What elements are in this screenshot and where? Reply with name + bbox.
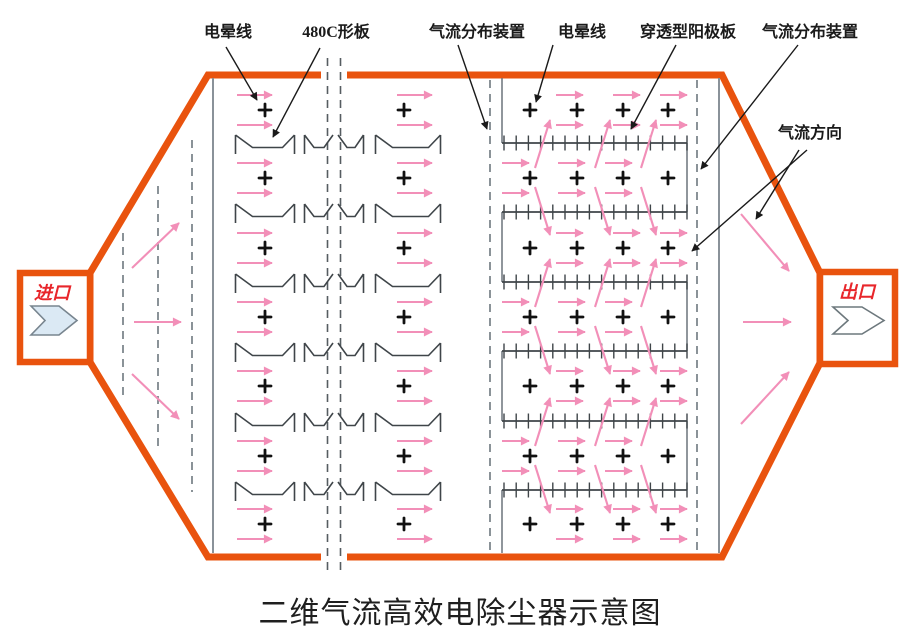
label-corona-wire-right: 电晕线 bbox=[558, 22, 606, 41]
label-flow-distributor-left: 气流分布装置 bbox=[428, 22, 525, 41]
corona-wire-plus bbox=[524, 450, 536, 462]
inlet-label: 进口 bbox=[34, 283, 72, 303]
corona-wire-plus bbox=[617, 450, 629, 462]
outlet-label: 出口 bbox=[839, 282, 877, 302]
c-plate bbox=[305, 482, 364, 501]
flow-arrow bbox=[535, 259, 550, 307]
corona-wire-plus bbox=[524, 380, 536, 392]
flow-arrow bbox=[595, 398, 610, 446]
flow-arrows bbox=[132, 95, 791, 539]
flow-arrow bbox=[132, 223, 179, 268]
leader-flow-direction-2 bbox=[692, 150, 807, 251]
corona-wire-plus bbox=[617, 242, 629, 254]
flow-arrow bbox=[595, 465, 610, 513]
flow-arrow bbox=[641, 326, 656, 374]
corona-wire-plus bbox=[259, 380, 271, 392]
precipitator-schematic-page: 电晕线 480C形板 气流分布装置 电晕线 穿透型阳极板 气流分布装置 气流方向… bbox=[0, 0, 915, 644]
flow-arrow bbox=[535, 326, 550, 374]
corona-wire-plus bbox=[662, 380, 674, 392]
c-plate bbox=[236, 274, 295, 293]
flow-arrow bbox=[641, 120, 656, 168]
corona-wire-plus bbox=[571, 172, 583, 184]
corona-wire-plus bbox=[662, 450, 674, 462]
corona-wire-plus bbox=[617, 518, 629, 530]
corona-wire-plus bbox=[617, 380, 629, 392]
corona-wire-plus bbox=[524, 518, 536, 530]
c-plate bbox=[236, 413, 295, 432]
c-plate bbox=[376, 204, 441, 223]
corona-wire-plus bbox=[259, 518, 271, 530]
c-plate bbox=[376, 343, 441, 362]
corona-wire-plus bbox=[662, 242, 674, 254]
flow-arrow bbox=[595, 259, 610, 307]
corona-wire-plus bbox=[398, 242, 410, 254]
leader-flow-distributor-left bbox=[458, 45, 487, 129]
c-plate bbox=[376, 482, 441, 501]
flow-arrow bbox=[595, 326, 610, 374]
flow-arrow bbox=[595, 187, 610, 235]
corona-wire-plus bbox=[524, 311, 536, 323]
corona-wire-plus bbox=[259, 311, 271, 323]
corona-wire-plus bbox=[571, 380, 583, 392]
border-gap-top bbox=[321, 67, 347, 83]
c-plate bbox=[236, 482, 295, 501]
flow-arrow bbox=[641, 187, 656, 235]
flow-arrow bbox=[741, 372, 789, 424]
flow-arrow bbox=[595, 120, 610, 168]
corona-wire-plus bbox=[524, 172, 536, 184]
corona-wire-plus bbox=[524, 104, 536, 116]
precipitator-diagram: 电晕线 480C形板 气流分布装置 电晕线 穿透型阳极板 气流分布装置 气流方向… bbox=[0, 0, 915, 644]
corona-wire-plus bbox=[398, 311, 410, 323]
flow-arrow bbox=[641, 259, 656, 307]
c-plate bbox=[236, 204, 295, 223]
corona-wire-plus bbox=[398, 104, 410, 116]
label-anode-plate: 穿透型阳极板 bbox=[640, 22, 737, 41]
c-plate bbox=[236, 135, 295, 154]
corona-wire-plus bbox=[398, 518, 410, 530]
corona-wire-plus bbox=[398, 450, 410, 462]
corona-wire-plus bbox=[571, 104, 583, 116]
flow-arrow bbox=[535, 120, 550, 168]
corona-wire-plus bbox=[398, 380, 410, 392]
c-plate bbox=[376, 413, 441, 432]
corona-wire-plus bbox=[662, 518, 674, 530]
flow-arrow bbox=[641, 465, 656, 513]
corona-wire-plus bbox=[259, 172, 271, 184]
corona-wire-plus bbox=[571, 450, 583, 462]
label-corona-wire-left: 电晕线 bbox=[204, 22, 252, 41]
border-gap-bottom bbox=[321, 549, 347, 565]
corona-wire-plus bbox=[662, 311, 674, 323]
c-plate bbox=[305, 343, 364, 362]
corona-wires bbox=[259, 104, 674, 530]
corona-wire-plus bbox=[398, 172, 410, 184]
corona-wire-plus bbox=[617, 311, 629, 323]
c-plate bbox=[305, 274, 364, 293]
label-c-plate: 480C形板 bbox=[302, 22, 371, 41]
label-flow-distributor-right: 气流分布装置 bbox=[761, 22, 858, 41]
corona-wire-plus bbox=[571, 311, 583, 323]
c-plate bbox=[305, 135, 364, 154]
c-plate bbox=[236, 343, 295, 362]
c-plate bbox=[305, 413, 364, 432]
field-boundaries bbox=[213, 78, 719, 553]
corona-wire-plus bbox=[259, 104, 271, 116]
corona-wire-plus bbox=[571, 518, 583, 530]
leader-c-plate bbox=[273, 48, 320, 137]
corona-wire-plus bbox=[617, 172, 629, 184]
flow-arrow bbox=[535, 187, 550, 235]
leader-flow-distributor-right bbox=[701, 45, 798, 169]
corona-wire-plus bbox=[524, 242, 536, 254]
corona-wire-plus bbox=[662, 172, 674, 184]
c-plate bbox=[305, 204, 364, 223]
flow-arrow bbox=[741, 214, 789, 271]
flow-arrow bbox=[641, 398, 656, 446]
corona-wire-plus bbox=[571, 242, 583, 254]
corona-wire-plus bbox=[259, 242, 271, 254]
corona-wire-plus bbox=[259, 450, 271, 462]
flow-arrow bbox=[535, 465, 550, 513]
flow-arrow bbox=[132, 374, 179, 419]
vessel-shell bbox=[20, 67, 895, 565]
label-flow-direction: 气流方向 bbox=[777, 123, 842, 142]
c-plate bbox=[376, 274, 441, 293]
flow-arrow bbox=[535, 398, 550, 446]
corona-wire-plus bbox=[617, 104, 629, 116]
corona-wire-plus bbox=[662, 104, 674, 116]
diagram-title: 二维气流高效电除尘器示意图 bbox=[259, 597, 662, 630]
c-plate bbox=[376, 135, 441, 154]
